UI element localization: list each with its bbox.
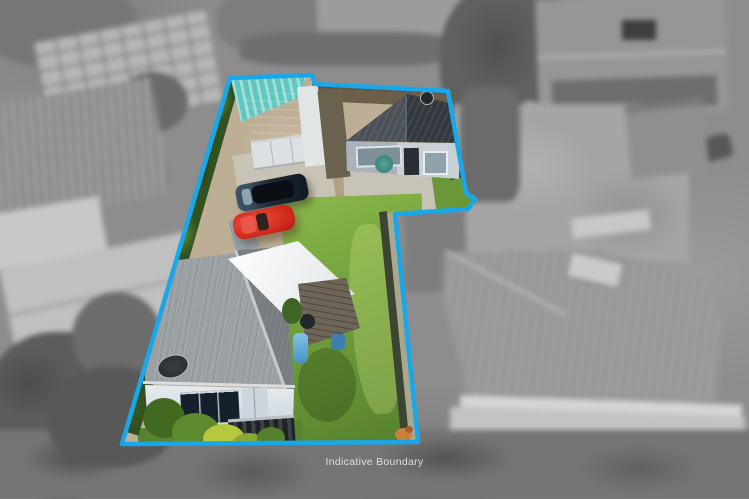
boundary-overlay: [0, 0, 749, 499]
indicative-boundary-caption: Indicative Boundary: [0, 456, 749, 468]
indicative-boundary-outline: [122, 75, 475, 444]
aerial-property-photo: Indicative Boundary: [0, 0, 749, 499]
